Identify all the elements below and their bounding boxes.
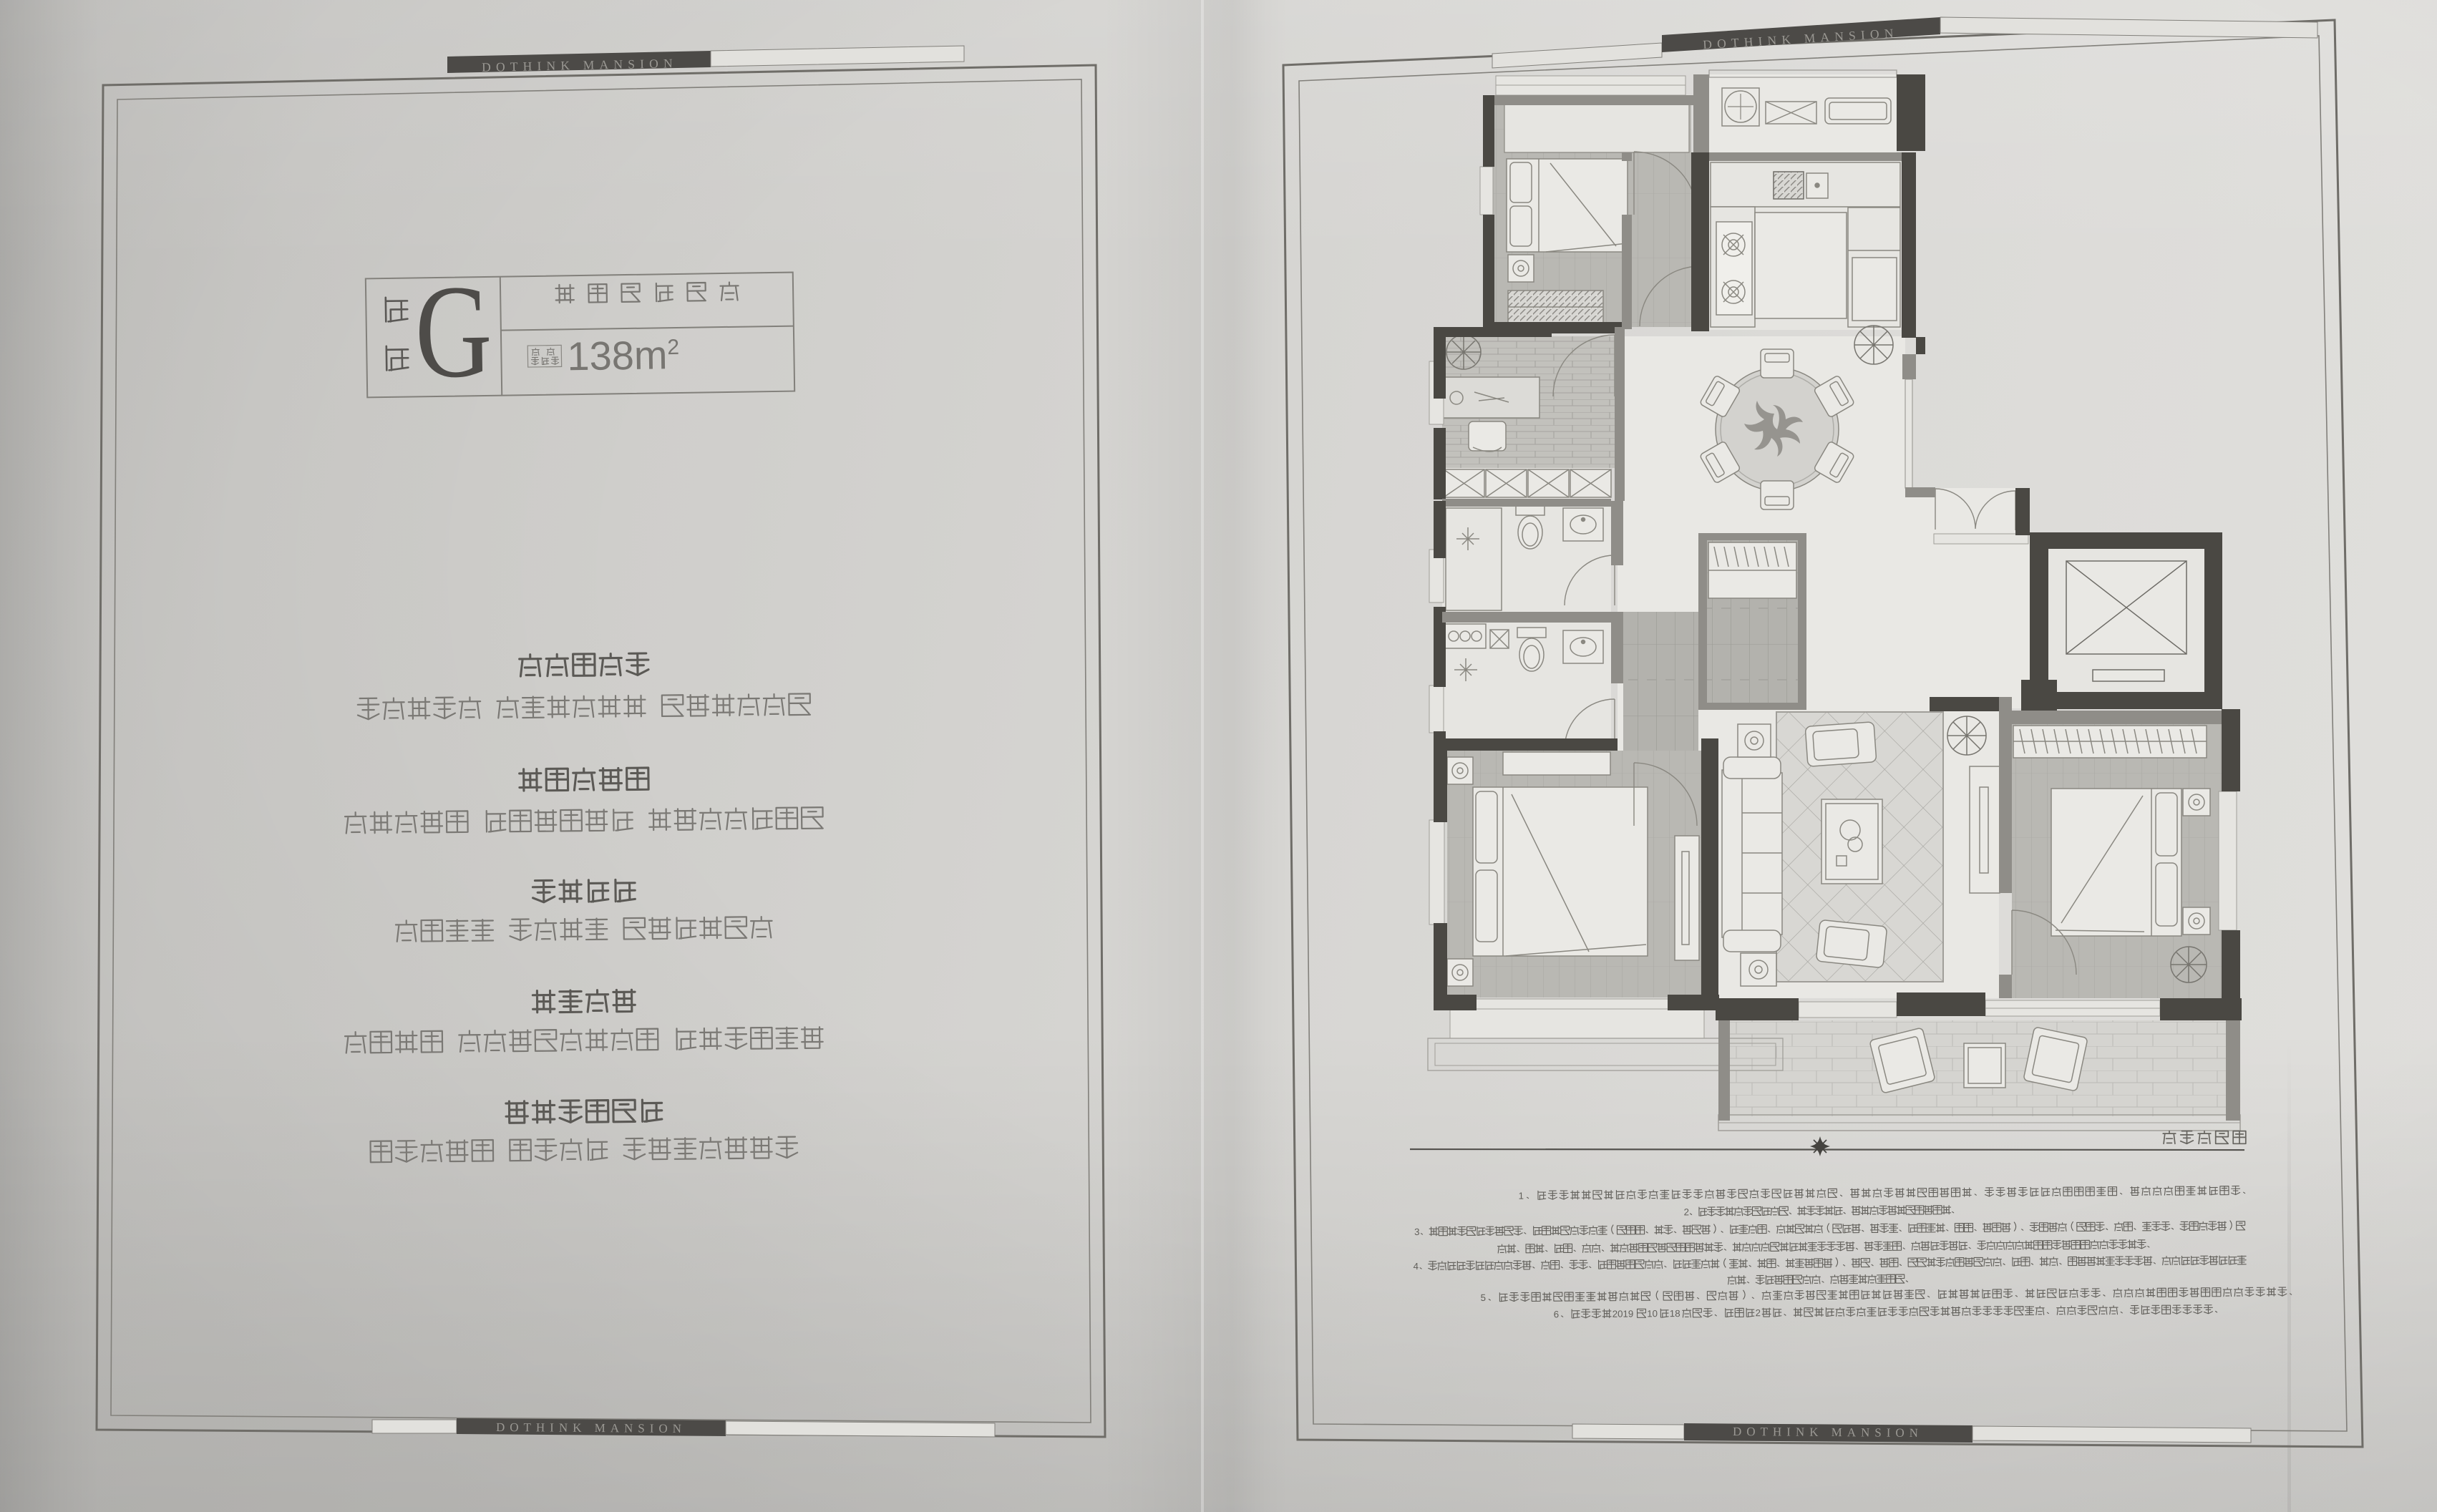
svg-text:1: 1 xyxy=(1519,1191,1524,1201)
svg-text:10: 10 xyxy=(1647,1308,1658,1319)
svg-text:5: 5 xyxy=(1481,1292,1487,1303)
svg-text:DOTHINK MANSION: DOTHINK MANSION xyxy=(496,1420,686,1435)
svg-text:2: 2 xyxy=(1684,1206,1690,1217)
svg-text:3: 3 xyxy=(1414,1226,1420,1237)
svg-text:DOTHINK MANSION: DOTHINK MANSION xyxy=(1733,1425,1923,1440)
svg-text:4: 4 xyxy=(1414,1261,1419,1272)
svg-text:G: G xyxy=(414,258,492,406)
svg-text:2: 2 xyxy=(1756,1307,1761,1318)
svg-text:6: 6 xyxy=(1554,1309,1560,1320)
svg-text:18: 18 xyxy=(1670,1308,1680,1319)
svg-text:2019: 2019 xyxy=(1612,1308,1634,1319)
svg-text:138m2: 138m2 xyxy=(567,332,680,379)
